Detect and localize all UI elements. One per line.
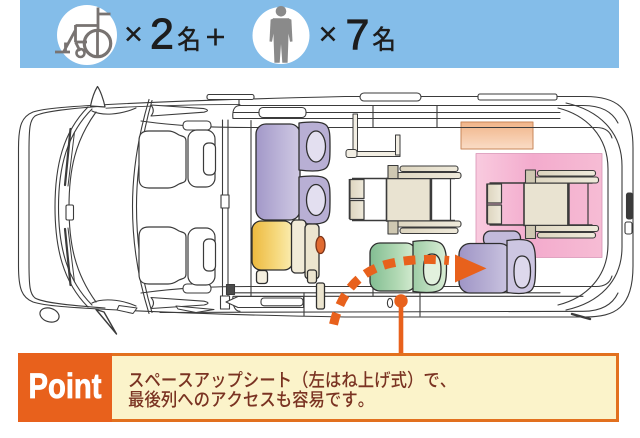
svg-text:7: 7 [346, 11, 370, 59]
svg-text:Point: Point [29, 367, 102, 406]
svg-text:2: 2 [150, 11, 174, 59]
